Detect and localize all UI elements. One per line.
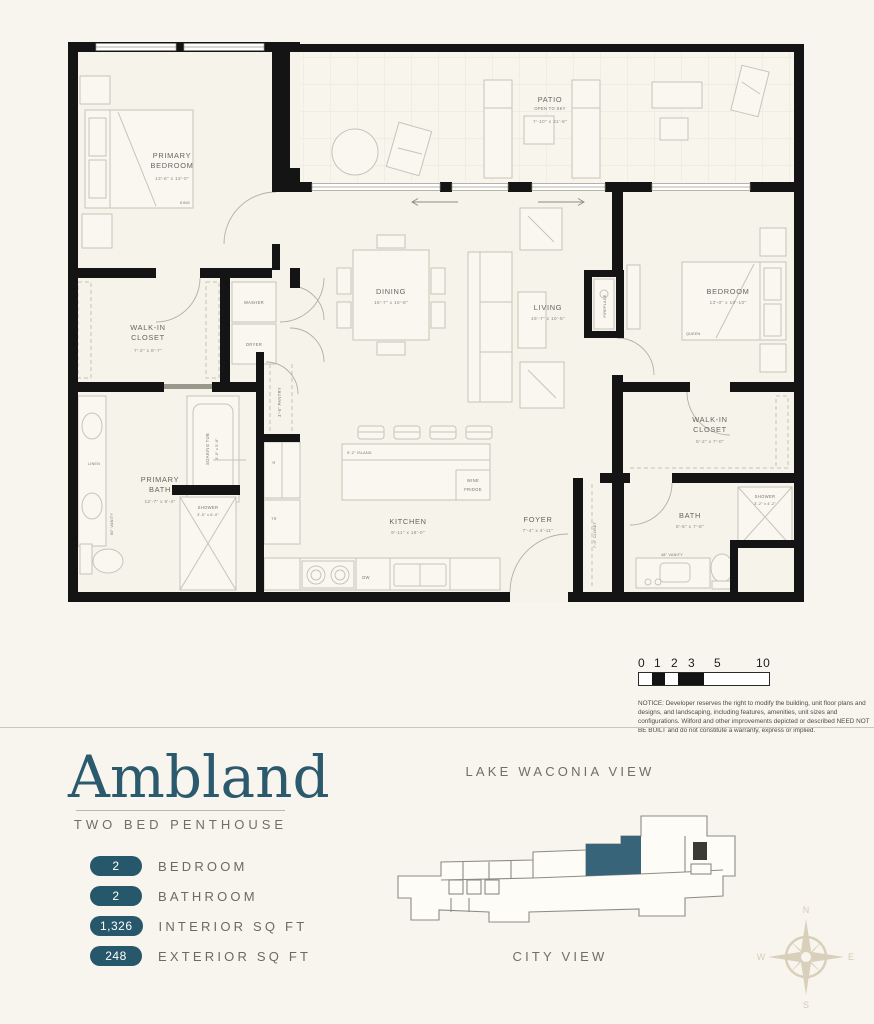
building-keyplan <box>393 802 738 934</box>
svg-text:13'-0" x 10'-10": 13'-0" x 10'-10" <box>710 300 747 306</box>
bed-tag-queen: QUEEN <box>686 332 701 336</box>
svg-text:CLOSET: CLOSET <box>693 425 727 434</box>
svg-text:BATH: BATH <box>149 485 171 494</box>
primary-shower-label: SHOWER <box>198 505 219 510</box>
room-label-bedroom: BEDROOM <box>706 287 749 296</box>
scale-tick: 10 <box>756 656 770 670</box>
room-label-primary-bedroom: PRIMARY <box>153 151 191 160</box>
room-label-foyer: FOYER <box>524 515 553 524</box>
unit-title: Ambland <box>68 748 293 806</box>
room-dims-primary-bedroom: 13'-6" x 13'-0" <box>155 176 189 182</box>
svg-text:12'-7" x 6'-4": 12'-7" x 6'-4" <box>144 499 175 505</box>
pantry-label: 3'-6" PANTRY <box>277 387 282 417</box>
washer-label: WASHER <box>244 300 264 305</box>
compass-rose: N S E W <box>756 898 856 1016</box>
compass-n: N <box>803 905 810 915</box>
svg-text:7'-4" x 4'-11": 7'-4" x 4'-11" <box>523 528 554 534</box>
bed-tag-king: KING <box>180 201 190 205</box>
stat-row-interior-sqft: 1,326 INTERIOR SQ FT <box>90 915 311 937</box>
dryer-label: DRYER <box>246 342 262 347</box>
vanity-48-label: 48" VANITY <box>661 553 683 557</box>
stat-row-bathroom: 2 BATHROOM <box>90 885 311 907</box>
compass-e: E <box>848 952 854 962</box>
scale-tick: 0 <box>638 656 645 670</box>
stat-row-exterior-sqft: 248 EXTERIOR SQ FT <box>90 945 311 967</box>
svg-text:3'-2" x 4'-2": 3'-2" x 4'-2" <box>754 502 776 506</box>
scale-bar-segments <box>638 672 770 686</box>
svg-text:15'-7" x 10'-5": 15'-7" x 10'-5" <box>531 316 565 322</box>
compass-s: S <box>803 1000 809 1010</box>
scale-tick: 1 <box>654 656 661 670</box>
room-label-walk-in-closet-b: WALK-IN <box>692 415 727 424</box>
room-label-kitchen: KITCHEN <box>389 517 426 526</box>
room-dims-patio: 7'-10" x 31'-8" <box>533 119 567 125</box>
wine-fridge-label: WINE <box>467 478 479 483</box>
stat-value-badge: 2 <box>90 886 142 906</box>
compass-w: W <box>757 952 766 962</box>
floor-plan: PATIO OPEN TO SKY 7'-10" x 31'-8" PRIMAR… <box>60 30 810 620</box>
room-label-living: LIVING <box>534 303 562 312</box>
stat-label: BATHROOM <box>158 889 258 904</box>
trash-label: TR <box>271 517 277 521</box>
svg-text:9'-11" x 16'-0": 9'-11" x 16'-0" <box>391 530 425 536</box>
svg-text:3'-0" x 5'-6": 3'-0" x 5'-6" <box>215 438 219 460</box>
scale-tick: 5 <box>714 656 721 670</box>
stat-row-bedroom: 2 BEDROOM <box>90 855 311 877</box>
svg-text:6'-5" x 7'-8": 6'-5" x 7'-8" <box>676 524 704 530</box>
svg-text:CLOSET: CLOSET <box>131 333 165 342</box>
foyer-closet-label: 7'-0" CLOSET <box>593 521 597 548</box>
unit-stats: 2 BEDROOM 2 BATHROOM 1,326 INTERIOR SQ F… <box>90 855 311 975</box>
svg-text:BEDROOM: BEDROOM <box>150 161 193 170</box>
vanity-60-label: 60" VANITY <box>110 513 114 535</box>
room-label-dining: DINING <box>376 287 406 296</box>
fridge-label: R <box>273 461 276 465</box>
room-label-walk-in-closet-a: WALK-IN <box>130 323 165 332</box>
fireplace-label: FIREPLACE <box>603 294 607 317</box>
view-label-lake: LAKE WACONIA VIEW <box>420 764 700 779</box>
svg-text:3'-5" x 6'-0": 3'-5" x 6'-0" <box>197 513 219 517</box>
linen-label: LINEN <box>88 462 100 466</box>
scale-bar: 0 1 2 3 5 10 <box>638 656 778 700</box>
view-label-city: CITY VIEW <box>420 949 700 964</box>
stat-label: EXTERIOR SQ FT <box>158 949 311 964</box>
stat-value-badge: 248 <box>90 946 142 966</box>
room-label-bath: BATH <box>679 511 701 520</box>
svg-text:5'-2" x 7'-0": 5'-2" x 7'-0" <box>696 439 724 445</box>
stat-value-badge: 1,326 <box>90 916 143 936</box>
island-label: 9'-2" ISLAND <box>347 451 372 455</box>
svg-text:FRIDGE: FRIDGE <box>464 487 482 492</box>
dishwasher-label: DW <box>362 575 370 580</box>
room-label-primary-bath: PRIMARY <box>141 475 179 484</box>
room-label-patio: PATIO <box>538 95 563 104</box>
shower-b-label: SHOWER <box>755 494 776 499</box>
stat-label: INTERIOR SQ FT <box>159 919 308 934</box>
soaking-tub-label: SOAKING TUB <box>205 433 210 465</box>
legal-notice: NOTICE: Developer reserves the right to … <box>638 699 874 735</box>
scale-tick: 3 <box>688 656 695 670</box>
floorplan-sheet: { "branding": { "title": "Ambland", "sub… <box>0 0 874 1024</box>
room-sublabel-patio: OPEN TO SKY <box>534 106 566 111</box>
highlighted-unit <box>586 836 641 876</box>
branding-block: Ambland TWO BED PENTHOUSE <box>68 748 293 832</box>
svg-text:15'-7" x 10'-8": 15'-7" x 10'-8" <box>374 300 408 306</box>
stat-value-badge: 2 <box>90 856 142 876</box>
section-divider <box>0 727 874 728</box>
unit-subtitle: TWO BED PENTHOUSE <box>68 817 293 832</box>
sink <box>394 564 446 586</box>
svg-text:7'-2" x 8'-7": 7'-2" x 8'-7" <box>134 348 162 354</box>
stat-label: BEDROOM <box>158 859 248 874</box>
range <box>302 561 354 588</box>
scale-tick: 2 <box>671 656 678 670</box>
